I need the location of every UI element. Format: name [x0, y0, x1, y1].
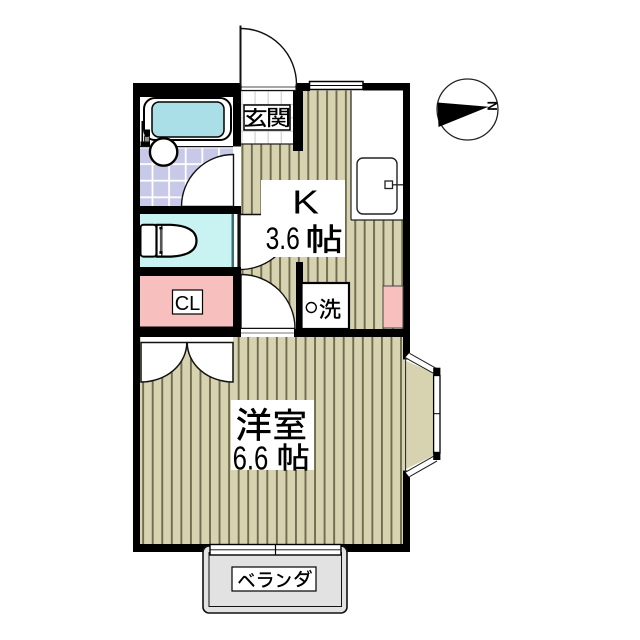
svg-text:N: N	[485, 101, 500, 111]
svg-text:3.6: 3.6	[266, 220, 300, 256]
svg-text:CL: CL	[175, 293, 201, 315]
svg-text:K: K	[292, 184, 319, 221]
svg-text:6.6: 6.6	[233, 440, 269, 477]
